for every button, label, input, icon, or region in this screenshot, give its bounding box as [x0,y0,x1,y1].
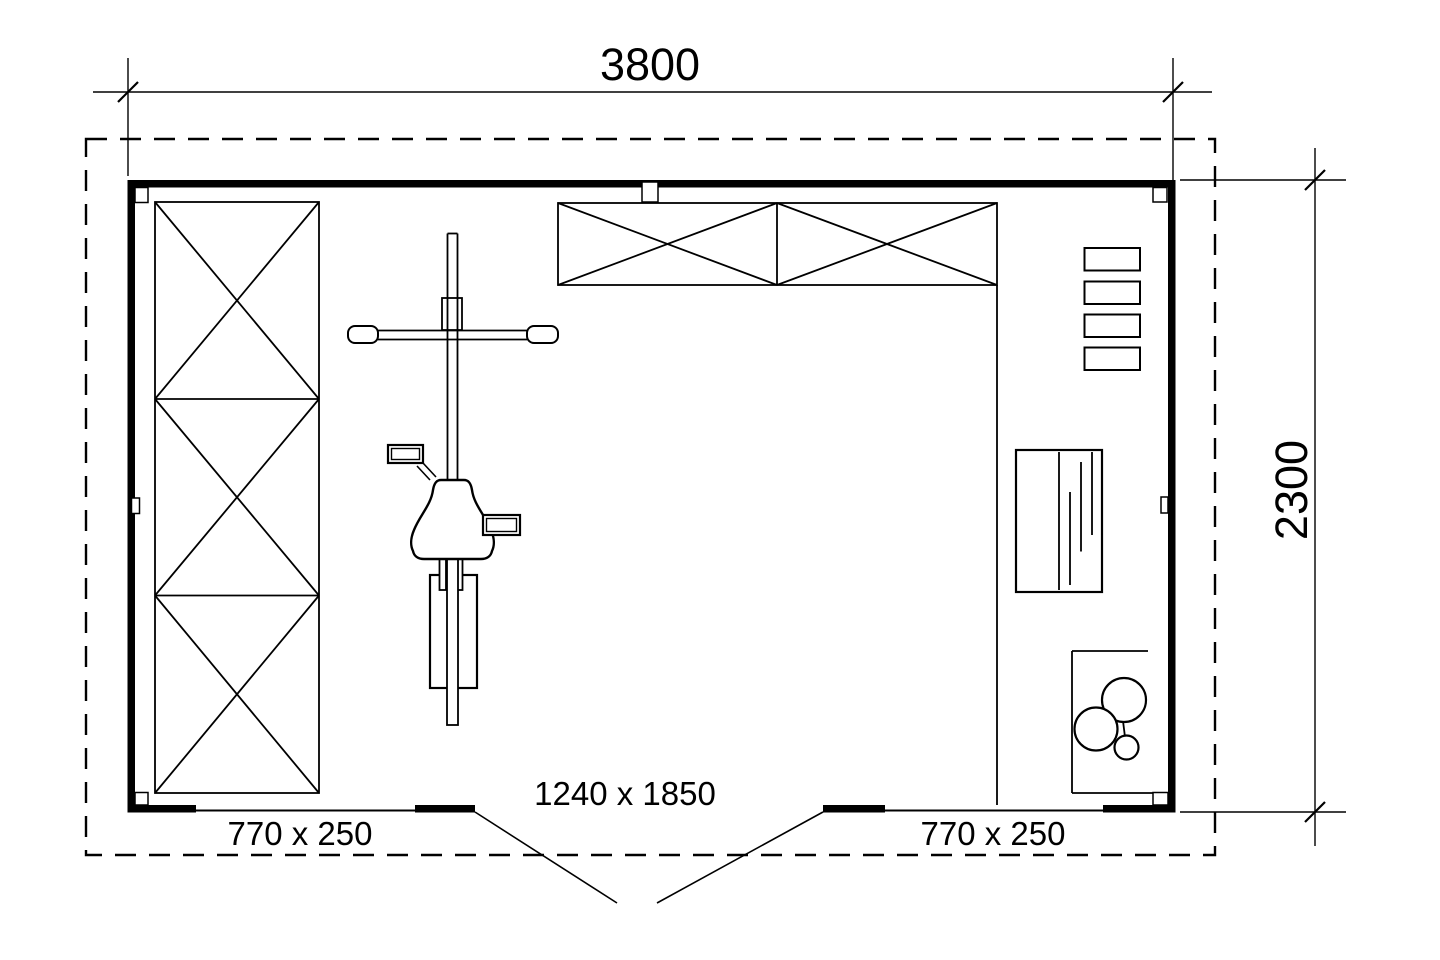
floor-plan-drawing: 3800 2300 [0,0,1440,960]
shelf-unit-left [155,202,319,793]
wall-right [1168,180,1176,813]
post-mid-left [132,498,140,514]
box-3 [1085,315,1141,338]
bicycle [348,234,558,726]
seat-stay-left [440,559,447,590]
dimension-depth-value: 2300 [1266,440,1317,540]
corner-unit-plants [1072,651,1153,793]
door-label: 1240 x 1850 [534,775,716,812]
door-leaf-right [823,805,885,813]
post-top-left [135,188,148,203]
post-bottom-right [1153,793,1168,806]
post-top-right [1153,188,1167,203]
door-leaf-left [415,805,475,813]
floor-plan-sheet: 3800 2300 [0,0,1440,960]
bicycle-stem [442,298,462,330]
workbench-table [1016,450,1102,592]
box-2 [1085,282,1141,305]
plant-circle-small [1115,736,1139,760]
wall-bottom-right [1103,805,1176,813]
box-4 [1085,348,1141,371]
wall-posts [132,182,1169,805]
bicycle-rear-wheel [447,559,458,725]
window-label-right: 770 x 250 [921,815,1066,852]
bicycle-pedal-left [388,445,436,480]
bicycle-pedal-right [483,515,520,535]
bicycle-front-wheel [448,234,458,483]
wall-cabinet-top [558,203,997,285]
dimension-right-depth [1180,148,1346,846]
grip-left [348,326,378,343]
wall-left [128,180,136,813]
post-mid-right [1161,497,1168,513]
door-swing-lines [475,812,823,903]
bicycle-handlebar [348,326,558,343]
box-1 [1085,248,1141,271]
shelf-boxes-right [1085,248,1141,370]
wall-bottom-left [128,805,197,813]
plant-circle-medium [1075,708,1118,751]
grip-right [527,326,558,343]
bicycle-saddle [411,480,494,559]
post-top-middle [642,182,658,202]
post-bottom-left [135,793,148,806]
window-label-left: 770 x 250 [228,815,373,852]
dimension-width-value: 3800 [600,39,700,90]
